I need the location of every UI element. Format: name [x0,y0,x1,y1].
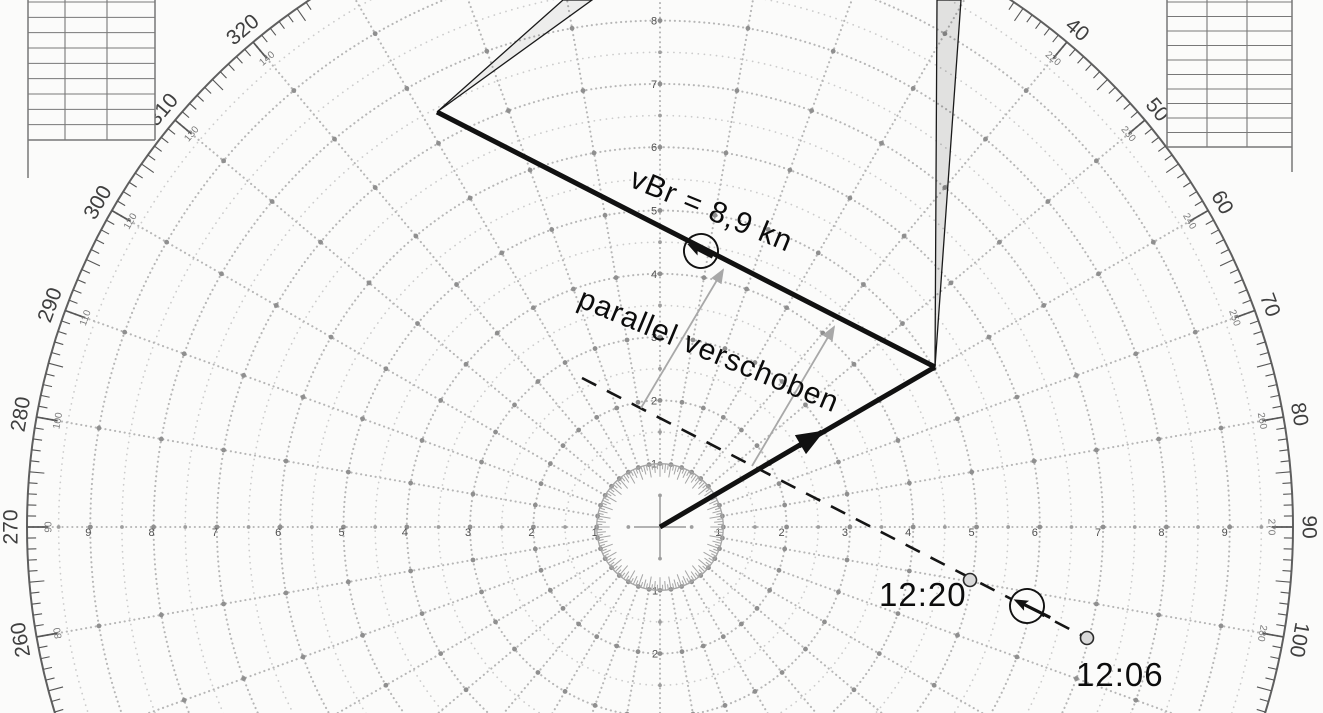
rim-tick [168,129,175,135]
grid-intersection-dot [658,398,663,403]
grid-intersection-dot [1227,525,1232,530]
grid-intersection-dot [408,569,413,574]
plot-point-1206 [1081,632,1094,645]
grid-intersection-dot [159,613,164,618]
rim-tick [141,164,153,173]
rim-tick [39,406,48,408]
grid-intersection-dot [1156,613,1161,618]
rim-tick [1265,374,1274,376]
center-rose-tick [685,571,692,582]
grid-intersection-dot [1094,602,1099,607]
bearing-label-280: 280 [6,395,35,434]
center-rose-tick [687,578,690,583]
polar-grid: 111122223333444455556666777788889999 [31,0,1289,713]
bearing-label-100: 100 [1285,620,1314,659]
grid-intersection-dot [221,158,226,163]
grid-intersection-dot [415,321,420,326]
center-rose-tick [698,482,704,488]
grid-intersection-dot [902,234,907,239]
grid-intersection-dot [831,49,836,54]
rim-tick [262,35,268,42]
grid-half-dot [500,525,504,529]
grid-intersection-dot [533,503,538,508]
center-rose-tick [631,471,634,476]
rim-tick [1166,164,1178,173]
bearing-label-80: 80 [1286,401,1313,428]
grid-intersection-dot [284,591,289,596]
center-rose-tick [677,582,679,587]
grid-intersection-dot [1193,330,1198,335]
rim-tick [1265,678,1274,680]
rim-tick [1268,667,1277,669]
grid-intersection-dot [636,400,641,405]
grid-intersection-dot [471,558,476,563]
grid-intersection-dot [468,196,473,201]
reciprocal-label-130: 130 [182,124,201,144]
center-rose-tick [644,579,646,588]
rim-tick [82,270,90,274]
rim-tick [1243,300,1251,303]
rim-tick [32,450,41,451]
grid-intersection-dot [636,649,641,654]
grid-intersection-dot [680,400,685,405]
grid-intersection-dot [284,459,289,464]
grid-intersection-dot [767,588,772,593]
center-rose-tick [652,584,653,589]
rim-tick [46,374,55,376]
rim-tick [1279,603,1288,604]
grid-intersection-dot [777,481,782,486]
rim-tick [212,79,223,90]
rim-tick [1278,439,1287,440]
grid-intersection-dot [1133,698,1138,703]
rim-tick [123,192,131,197]
center-rose-tick [621,573,624,577]
rim-tick [35,428,44,429]
plot-overlay: vBr = 8,9 kn parallel verschoben 12:20 1… [437,0,1164,693]
rim-tick [197,95,204,101]
grid-intersection-dot [561,606,566,611]
ring-number-8: 8 [1158,527,1164,539]
center-rose-tick [703,566,707,570]
center-rose-tick [610,562,614,565]
grid-intersection-dot [454,282,459,287]
grid-intersection-dot [879,141,884,146]
center-rose-tick [615,482,621,488]
grid-intersection-dot [820,331,825,336]
grid-intersection-dot [471,492,476,497]
rim-tick [39,646,48,648]
rim-tick [49,363,63,367]
grid-intersection-dot [1219,426,1224,431]
center-rose-tick [711,554,716,557]
rim-tick [61,321,70,324]
grid-intersection-dot [658,208,663,213]
center-rose-tick [613,484,617,488]
center-rose-tick [641,467,643,472]
grid-intersection-dot [1074,373,1079,378]
grid-radial [708,123,1141,487]
grid-intersection-dot [367,280,372,285]
center-rose-tick [605,552,616,559]
grid-radial [178,568,611,713]
grid-intersection-dot [594,634,599,639]
reciprocal-label-270: 270 [1266,519,1277,536]
rim-tick [1014,8,1023,20]
rim-tick [1195,201,1203,206]
grid-intersection-dot [241,676,246,681]
grid-intersection-dot [658,18,663,23]
rim-tick [297,8,306,20]
grid-intersection-dot [1037,525,1042,530]
grid-half-dot [310,525,314,529]
grid-radial [722,418,1279,516]
grid-intersection-dot [360,416,365,421]
grid-intersection-dot [493,430,498,435]
grid-intersection-dot [997,240,1002,245]
grid-intersection-dot [1032,459,1037,464]
grid-intersection-dot [484,49,489,54]
ring-number-6: 6 [651,142,657,154]
grid-intersection-dot [911,525,916,530]
ring-number-2: 2 [651,395,657,407]
grid-half-dot [658,557,662,561]
grid-intersection-dot [539,481,544,486]
grid-intersection-dot [1164,525,1169,530]
grid-intersection-dot [291,88,296,93]
grid-intersection-dot [594,415,599,420]
grid-half-dot [658,620,662,624]
center-rose-tick [600,508,605,510]
rim-tick [1257,687,1271,691]
grid-half-dot [563,525,567,529]
grid-half-dot [658,304,662,308]
grid-intersection-dot [721,415,726,420]
grid-intersection-dot [332,137,337,142]
rim-tick [91,250,99,254]
center-rose-tick [703,484,707,488]
rim-tick [1270,395,1279,397]
rim-tick [1206,220,1214,224]
grid-half-dot [120,525,124,529]
rim-tick [73,290,81,293]
grid-radial [178,123,611,487]
rim-tick [35,625,44,626]
grid-radial [682,586,875,713]
grid-intersection-dot [907,569,912,574]
rim-tick [1276,428,1285,429]
rim-tick [1282,483,1291,484]
grid-intersection-dot [420,611,425,616]
ring-number-3: 3 [465,527,471,539]
rim-tick [1177,173,1184,178]
grid-intersection-dot [614,275,619,280]
grid-intersection-dot [1014,395,1019,400]
rim-tick [1093,72,1099,78]
grid-intersection-dot [911,86,916,91]
center-rose-tick [597,532,606,533]
center-rose-tick [712,541,721,543]
grid-intersection-dot [755,443,760,448]
grid-intersection-dot [861,282,866,287]
rim-tick [1257,709,1266,712]
grid-intersection-dot [318,240,323,245]
center-rose-tick [665,464,666,473]
rim-tick [52,353,61,355]
grid-half-dot [658,50,662,54]
center-rose-tick [668,584,669,589]
rim-tick [1230,270,1238,274]
grid-intersection-dot [701,644,706,649]
center-rose-tick [717,535,722,536]
direction-symbol-vbr [678,228,724,274]
rim-tick [1158,146,1165,151]
rim-tick [1279,450,1288,451]
grid-intersection-dot [614,644,619,649]
grid-intersection-dot [1094,448,1099,453]
reciprocal-label-240: 240 [1180,212,1198,232]
grid-radial [551,0,649,465]
grid-intersection-dot [593,346,598,351]
grid-intersection-dot [1046,199,1051,204]
grid-half-dot [437,525,441,529]
grid-intersection-dot [593,703,598,708]
reciprocal-label-120: 120 [122,211,140,231]
reciprocal-label-280: 280 [1255,624,1269,643]
grid-ring-half [312,179,1008,713]
grid-intersection-dot [495,331,500,336]
center-rose-tick [599,511,608,513]
rim-tick [220,72,226,78]
rim-tick [1268,385,1277,387]
grid-half-dot [658,430,662,434]
rim-tick [49,687,63,691]
bearing-label-270: 270 [0,509,23,544]
grid-radial [256,45,620,478]
grid-intersection-dot [512,403,517,408]
grid-intersection-dot [533,547,538,552]
grid-intersection-dot [436,141,441,146]
ring-number-8: 8 [651,16,657,28]
ring-number-2: 2 [779,527,785,539]
reciprocal-label-250: 250 [1226,308,1242,328]
rim-tick [1053,35,1059,42]
grid-half-dot [57,525,61,529]
grid-intersection-dot [1096,271,1101,276]
grid-intersection-dot [301,395,306,400]
center-rose-tick [685,472,692,483]
bearing-label-300: 300 [79,182,116,224]
rim-tick [30,592,39,593]
center-rose-tick [617,570,621,574]
rim-tick [1239,290,1247,293]
grid-intersection-dot [420,438,425,443]
rim-tick [86,259,100,265]
grid-intersection-dot [787,168,792,173]
rim-tick [1036,21,1041,28]
rim-tick [101,230,109,234]
ring-number-4: 4 [402,527,408,539]
center-rose-tick [600,544,605,546]
grid-intersection-dot [549,227,554,232]
grid-intersection-dot [1014,654,1019,659]
center-rose-tick [706,488,710,491]
ring-number-4: 4 [905,527,911,539]
rim-tick [1124,103,1131,109]
grid-intersection-dot [563,689,568,694]
grid-intersection-dot [384,683,389,688]
rim-tick [1276,581,1291,582]
grid-intersection-dot [723,703,728,708]
center-rose-tick [717,519,722,520]
center-rose-tick [628,571,635,582]
rim-tick [29,483,38,484]
rim-tick [1260,353,1269,355]
rim-tick [1278,614,1287,615]
rim-tick [1221,250,1229,254]
grid-radial [115,213,605,496]
grid-intersection-dot [724,151,729,156]
grid-half-dot [943,525,947,529]
grid-intersection-dot [845,492,850,497]
grid-radial [69,312,601,505]
grid-intersection-dot [219,271,224,276]
rim-tick [96,240,104,244]
center-rose-tick [674,579,676,588]
grid-intersection-dot [987,335,992,340]
rim-tick [161,137,168,143]
grid-intersection-dot [744,287,749,292]
grid-intersection-dot [592,151,597,156]
grid-intersection-dot [658,271,663,276]
grid-intersection-dot [658,651,663,656]
grid-intersection-dot [373,185,378,190]
bearing-label-70: 70 [1255,290,1285,320]
rim-tick [1044,28,1050,35]
grid-intersection-dot [721,634,726,639]
rim-tick [32,603,41,604]
rim-tick [1116,95,1123,101]
rim-tick [1097,79,1108,90]
rim-tick [148,155,155,160]
center-rose-tick [617,480,621,484]
center-rose-tick [644,466,646,475]
grid-intersection-dot [877,651,882,656]
center-rose-tick [712,511,721,513]
grid-intersection-dot [571,287,576,292]
time-label-1220: 12:20 [879,576,967,613]
grid-half-dot [658,240,662,244]
grid-intersection-dot [464,362,469,367]
grid-intersection-dot [983,137,988,142]
bearing-label-90: 90 [1298,515,1321,538]
grid-intersection-dot [479,590,484,595]
grid-half-dot [626,525,630,529]
rim-tick [1086,64,1092,71]
grid-intersection-dot [969,470,974,475]
center-rose-tick [695,573,698,577]
grid-radial [445,586,638,713]
rim-tick [58,331,67,334]
rim-tick [43,667,52,669]
grid-intersection-dot [680,649,685,654]
direction-symbol-relative [1004,583,1058,633]
center-rose-tick [597,535,602,536]
grid-intersection-dot [528,168,533,173]
center-rose-tick [665,581,666,590]
rim-tick [1234,280,1242,284]
grid-intersection-dot [576,622,581,627]
grid-intersection-dot [182,698,187,703]
rim-tick [1281,592,1290,593]
rim-tick [190,103,197,109]
grid-intersection-dot [539,568,544,573]
grid-intersection-dot [900,321,905,326]
rim-tick [279,21,284,28]
table-paper [1167,0,1292,147]
rim-tick [1260,699,1269,701]
rim-tick [205,87,211,93]
grid-intersection-dot [658,145,663,150]
grid-intersection-dot [1151,240,1156,245]
rim-tick [106,220,114,224]
grid-intersection-dot [755,606,760,611]
center-rose-tick [621,477,624,481]
rim-tick [69,300,77,303]
bearing-label-260: 260 [6,620,35,659]
grid-radial [69,549,601,713]
grid-intersection-dot [702,275,707,280]
center-rose-tick [704,552,715,559]
grid-intersection-dot [777,568,782,573]
grid-intersection-dot [221,448,226,453]
grid-intersection-dot [464,687,469,692]
rim-tick [1189,192,1197,197]
rim-tick [29,472,44,473]
rim-tick [55,342,64,345]
reciprocal-label-80: 80 [52,626,65,639]
rim-tick [1131,112,1138,118]
rim-tick [129,182,137,187]
grid-intersection-dot [408,481,413,486]
rim-tick [1220,259,1234,265]
rim-tick [288,15,293,22]
grid-intersection-dot [576,428,581,433]
grid-intersection-dot [479,460,484,465]
grid-intersection-dot [822,620,827,625]
grid-intersection-dot [561,443,566,448]
center-rose-tick [652,464,653,469]
grid-intersection-dot [1219,624,1224,629]
rim-tick [1270,657,1279,659]
rim-tick [1145,129,1152,135]
grid-intersection-dot [346,470,351,475]
grid-intersection-dot [122,330,127,335]
rim-tick [29,571,38,572]
rim-tick [1027,15,1032,22]
grid-half-dot [658,683,662,687]
grid-half-dot [1006,525,1010,529]
rim-tick [182,112,189,118]
center-rose-tick [641,582,643,587]
grid-intersection-dot [536,379,541,384]
bearing-wedge-left [437,0,592,112]
grid-intersection-dot [848,525,853,530]
grid-intersection-dot [780,670,785,675]
rim-tick [1276,625,1285,626]
grid-intersection-dot [603,213,608,218]
ring-number-6: 6 [1032,527,1038,539]
